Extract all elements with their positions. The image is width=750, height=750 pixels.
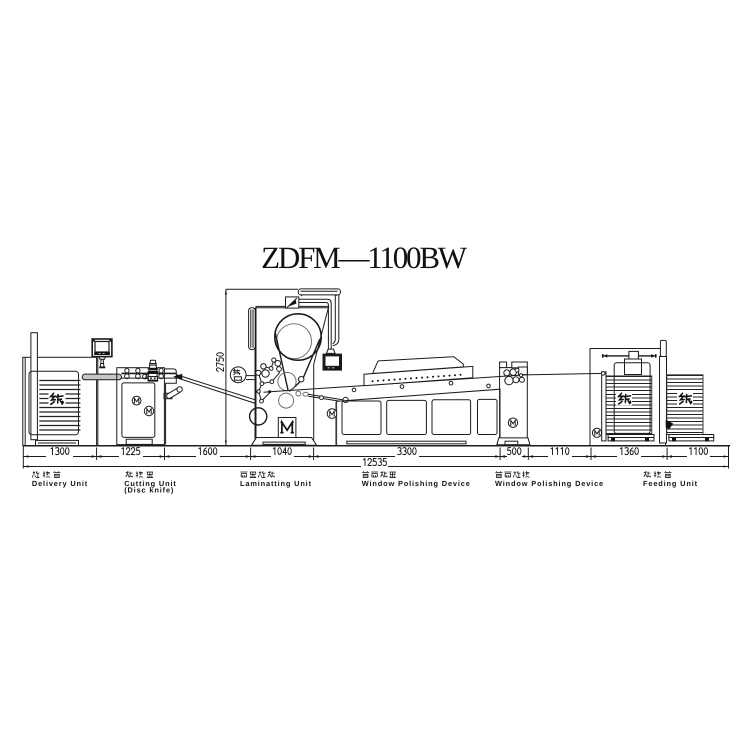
svg-text:Laminatting Unit: Laminatting Unit xyxy=(240,479,312,488)
svg-text:Feeding Unit: Feeding Unit xyxy=(643,479,698,488)
svg-text:(Disc knife): (Disc knife) xyxy=(124,486,174,495)
svg-text:Window Polishing Device: Window Polishing Device xyxy=(362,479,471,488)
svg-text:Delivery Unit: Delivery Unit xyxy=(32,479,88,488)
svg-text:Window Polishing Device: Window Polishing Device xyxy=(495,479,604,488)
svg-text:ZDFM—1100BW: ZDFM—1100BW xyxy=(261,240,468,275)
